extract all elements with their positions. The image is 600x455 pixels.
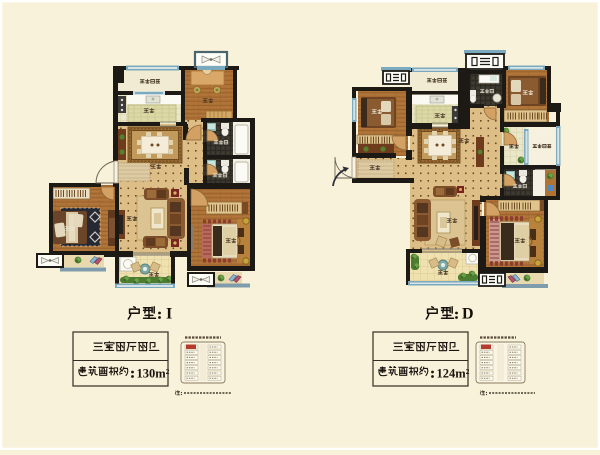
svg-text:D: D [462, 306, 474, 323]
svg-text:I: I [166, 306, 172, 323]
svg-text:124m²: 124m² [437, 367, 470, 381]
svg-text:130m²: 130m² [137, 367, 170, 381]
